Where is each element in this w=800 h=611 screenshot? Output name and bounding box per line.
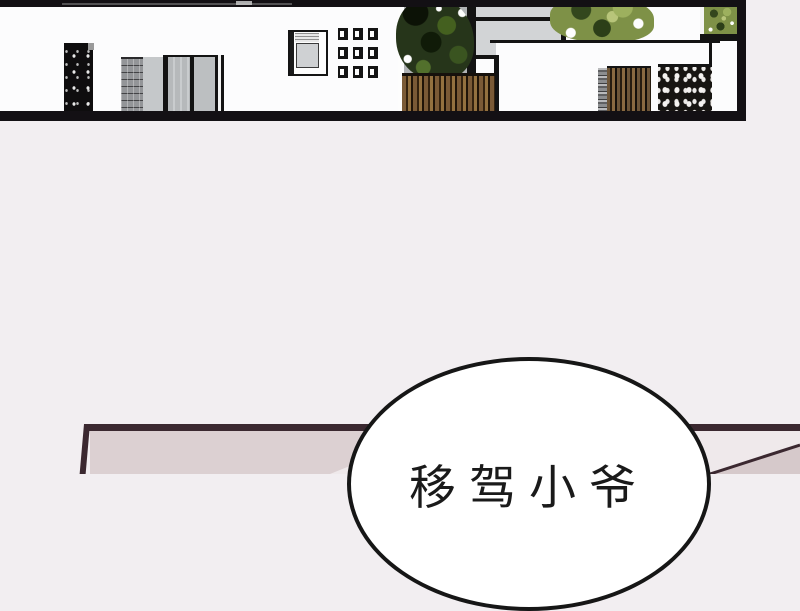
wardrobe-panel-gray [194,55,215,111]
speech-bubble-text: 移驾小爷 [351,449,707,518]
wall-tile [338,47,348,59]
wall-step-line [476,55,496,59]
stone-pillar [121,57,143,113]
planter-frame-edge [700,2,704,38]
wardrobe-edge [221,55,224,111]
wardrobe-panel-striped [168,55,190,113]
speech-bubble: 移驾小爷 [347,357,711,611]
perforated-screen [658,64,712,111]
bottom-panel-left-border [80,424,90,474]
wall-cabinet-door [296,43,319,68]
wardrobe-panel-light [143,57,163,111]
stone-strip [598,68,607,111]
counter-top-line [490,40,720,43]
wall-cabinet-vent [295,33,319,42]
glass-pane-mid [476,0,496,55]
wall-tile [353,66,363,78]
wall-tile [368,66,378,78]
wall-planter-box [702,2,739,38]
floor-band [0,111,746,121]
wall-tile [368,28,378,40]
wall-tile [338,28,348,40]
wall-cabinet [288,30,328,76]
wall-tile-grid [338,28,386,78]
wall-tile [353,47,363,59]
wood-slat-planter [402,73,495,111]
wall-tile [368,47,378,59]
ceiling-vent [236,1,252,5]
panel-right-border [737,0,746,121]
wall-tile [338,66,348,78]
bookshelf-top-notch [88,43,94,50]
comic-page: { "page": { "background_color": "#f2eef1… [0,0,800,474]
wall-tile [353,28,363,40]
planter-bottom-band [700,34,737,41]
wood-slat-panel [607,66,651,111]
screen-support-line [709,42,712,66]
wall-cabinet-edge [290,32,294,74]
ceiling-beam-line [62,3,292,5]
bookshelf [64,43,93,111]
indoor-tree-dark [396,0,474,80]
architecture-panel [0,0,746,121]
